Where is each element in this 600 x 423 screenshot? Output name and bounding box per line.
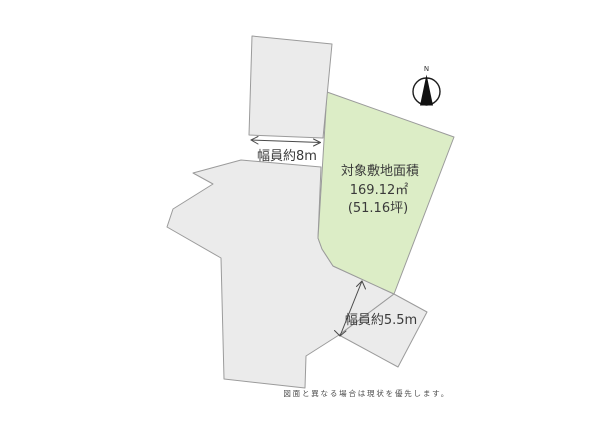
disclaimer-text: 図面と異なる場合は現状を優先します。 — [278, 388, 450, 399]
plot-area-sqm: 169.12㎡ — [350, 183, 409, 198]
north-label: N — [424, 65, 429, 73]
plot-area-title: 対象敷地面積 — [341, 164, 419, 179]
site-plan-diagram: N 幅員約8m 対象敷地面積 169.12㎡ (51.16坪) 幅員約5.5m … — [0, 0, 600, 423]
north-compass: N — [413, 65, 440, 106]
top-road-shape — [249, 36, 332, 138]
top-road-width-label: 幅員約8m — [257, 149, 317, 164]
plan-svg: N 幅員約8m 対象敷地面積 169.12㎡ (51.16坪) 幅員約5.5m — [0, 0, 600, 423]
side-road-width-label: 幅員約5.5m — [345, 313, 417, 328]
plot-area-tsubo: (51.16坪) — [348, 201, 408, 216]
